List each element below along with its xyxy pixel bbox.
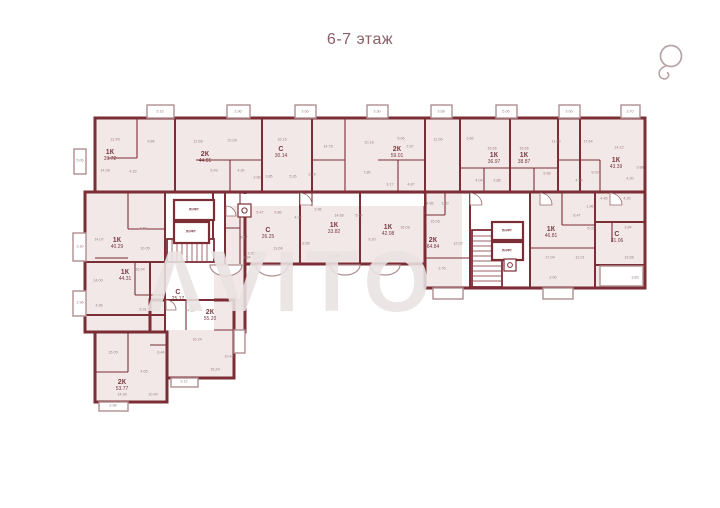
room-area-label: 11.68 — [551, 140, 560, 144]
room-area-label: 15.24 — [210, 368, 219, 372]
room-area-label: 3.84 — [624, 226, 631, 230]
room-area-label: 14.22 — [614, 146, 623, 150]
room-area-label: 5.17 — [240, 236, 247, 240]
room-area-label: 4.85 — [426, 202, 433, 206]
room-area-label: 4.87 — [407, 183, 414, 187]
room-area-label: 5.69 — [543, 172, 550, 176]
room-area-label: 3.06 — [565, 110, 572, 114]
room-area-label: 4.35 — [187, 309, 194, 313]
room-area-label: 4.28 — [95, 304, 102, 308]
room-area-label: 14.75 — [323, 145, 332, 149]
room-area-label: 14.00 — [93, 279, 102, 283]
room-area-label: 12.66 — [193, 140, 202, 144]
room-area-label: 2.98 — [109, 404, 116, 408]
room-area-label: 5.06 — [502, 110, 509, 114]
room-area-label: 3.88 — [636, 166, 643, 170]
room-area-label: 3.83 — [631, 276, 638, 280]
room-area-label: 4.23 — [129, 170, 136, 174]
room-area-label: 5.43 — [210, 169, 217, 173]
room-area-label: 3.85 — [265, 175, 272, 179]
room-area-label: 3.66 — [466, 137, 473, 141]
room-area-label: 7.80 — [363, 171, 370, 175]
room-area-label: 3.24 — [243, 256, 250, 260]
room-area-label: 3.60 — [441, 202, 448, 206]
room-area-label: 5.54 — [355, 214, 362, 218]
room-area-label: 15.05 — [108, 351, 117, 355]
room-area-label: 10.05 — [140, 247, 149, 251]
room-area-label: 4.20 — [623, 197, 630, 201]
room-area-label: 8.03 — [591, 171, 598, 175]
room-area-label: 10.94 — [148, 393, 157, 397]
room-area-label: 3.08 — [437, 110, 444, 114]
room-area-label: 15.65 — [487, 147, 496, 151]
room-area-label: 1.96 — [586, 205, 593, 209]
room-area-label: 12.02 — [453, 242, 462, 246]
room-area-label: 10.44 — [224, 355, 233, 359]
compass-icon — [645, 35, 695, 93]
room-area-label: 5.47 — [256, 211, 263, 215]
room-area-label: 2.90 — [549, 276, 556, 280]
room-area-label: 5.26 — [289, 175, 296, 179]
floor-title: 6-7 этаж — [0, 31, 720, 49]
room-area-label: 3.30 — [373, 110, 380, 114]
room-area-label: 4.20 — [626, 177, 633, 181]
room-area-label: 16.08 — [400, 226, 409, 230]
room-area-label: 13.68 — [624, 256, 633, 260]
room-area-label: 2.88 — [493, 179, 500, 183]
room-area-label: 16.16 — [277, 138, 286, 142]
room-area-label: 4.04 — [475, 179, 482, 183]
room-area-label: 14.07 — [94, 238, 103, 242]
room-area-label: 3.70 — [626, 110, 633, 114]
room-area-label: 3.94 — [332, 254, 339, 258]
room-area-label: 4.30 — [237, 169, 244, 173]
room-area-label: 8.99 — [302, 242, 309, 246]
room-area-label: 5.06 — [397, 137, 404, 141]
room-area-label: 4.45 — [600, 197, 607, 201]
room-area-label: 17.04 — [545, 256, 554, 260]
room-area-label: 4.05 — [140, 370, 147, 374]
room-area-label: 6.44 — [157, 351, 164, 355]
room-area-label: 15.65 — [519, 147, 528, 151]
room-area-label: 6.86 — [274, 211, 281, 215]
compass-circle — [661, 46, 682, 67]
room-area-label: 3.30 — [76, 245, 83, 249]
room-area-label: 3.76 — [438, 267, 445, 271]
floorplan-page: 6-7 этаж — [0, 0, 720, 508]
room-area-label: 3.17 — [386, 183, 393, 187]
room-area-label: 16.24 — [192, 338, 201, 342]
room-area-label: 13.66 — [273, 247, 282, 251]
room-area-label: 2.96 — [234, 110, 241, 114]
room-area-label: 15.06 — [430, 220, 439, 224]
room-area-label: 5.03 — [587, 227, 594, 231]
room-area-label: 5.16 — [156, 110, 163, 114]
room-area-label: 14.68 — [334, 214, 343, 218]
room-area-label: 14.30 — [117, 393, 126, 397]
room-area-label: 6.31 — [139, 308, 146, 312]
room-area-label: 3.12 — [180, 380, 187, 384]
room-area-label: 3.83 — [253, 176, 260, 180]
room-area-label: 9.84 — [147, 140, 154, 144]
room-area-label: 12.01 — [575, 256, 584, 260]
room-area-label: 4.54 — [575, 179, 582, 183]
room-area-label: 14.08 — [100, 169, 109, 173]
room-area-label: 10.16 — [364, 141, 373, 145]
room-area-label: 8.47 — [573, 214, 580, 218]
room-area-label: 2.96 — [314, 208, 321, 212]
room-area-label: 12.45 — [110, 138, 119, 142]
compass-hook — [659, 66, 669, 79]
room-area-label: 9.20 — [368, 238, 375, 242]
room-area-label: 2.88 — [139, 227, 146, 231]
room-area-label: 4.03 — [294, 216, 301, 220]
room-area-label: 5.06 — [76, 159, 83, 163]
room-area-label: 2.96 — [76, 301, 83, 305]
room-area-labels: 5.162.963.063.303.085.063.063.705.063.30… — [0, 0, 720, 508]
room-area-label: 17.64 — [583, 140, 592, 144]
room-area-label: 2.78 — [308, 173, 315, 177]
room-area-label: 11.06 — [433, 138, 442, 142]
room-area-label: 16.94 — [135, 268, 144, 272]
room-area-label: 2.97 — [406, 145, 413, 149]
room-area-label: 3.06 — [301, 110, 308, 114]
room-area-label: 10.09 — [227, 139, 236, 143]
